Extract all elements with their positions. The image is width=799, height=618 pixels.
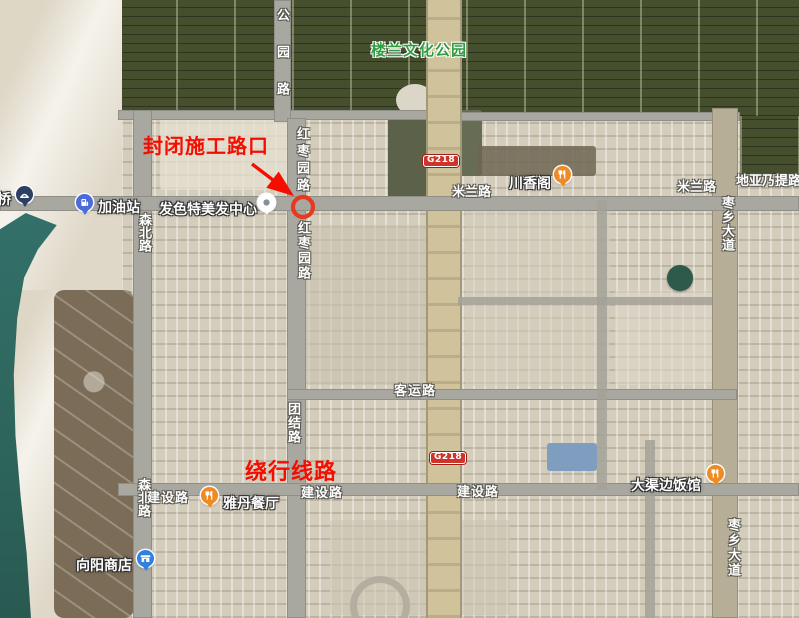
poi-label-xiangyang-store[interactable]: 向阳商店 <box>76 555 132 575</box>
road-minor-vertical-2 <box>645 440 655 618</box>
road-label-jianshe-road-3: 建设路 <box>457 486 499 501</box>
pin-tail <box>81 209 89 215</box>
terrain-building-row <box>478 146 596 176</box>
terrain-trees-1 <box>388 114 426 198</box>
road-minor-vertical-1 <box>597 200 607 490</box>
road-label-hongzaoyuan-road-1: 红枣园路 <box>293 127 308 195</box>
road-label-senbei-road-1: 森北路 <box>135 213 150 252</box>
road-shield-g218-south: G218 <box>430 452 466 464</box>
poi-label-gas-station[interactable]: 加油站 <box>98 197 140 217</box>
poi-pin-daqubian-restaurant[interactable] <box>707 465 724 482</box>
poi-label-bridge[interactable]: 桥 <box>0 189 11 209</box>
pin-tail <box>559 181 567 187</box>
road-keyun <box>287 389 737 400</box>
poi-label-yadan-restaurant[interactable]: 雅丹餐厅 <box>223 493 279 513</box>
road-g218-highway <box>426 0 462 618</box>
bridge-icon <box>19 189 30 200</box>
poi-pin-gas-station[interactable] <box>76 194 93 211</box>
road-label-tuanjie-road: 团结路 <box>284 402 299 444</box>
road-label-jianshe-road-1: 建设路 <box>147 492 189 507</box>
pin-tail <box>206 502 214 508</box>
poi-pin-bridge[interactable] <box>16 186 33 203</box>
pin-tail <box>21 201 29 207</box>
annotation-closed-intersection: 封闭施工路口 <box>143 130 269 159</box>
pin-tail <box>712 480 720 486</box>
road-shield-g218-north: G218 <box>423 155 459 167</box>
road-label-zaoxiang-avenue-2: 枣乡大道 <box>724 518 739 578</box>
poi-label-hair-salon[interactable]: 发色特美发中心 <box>159 199 257 219</box>
terrain-blue-roof-building <box>547 443 597 471</box>
pin-tail <box>142 565 150 571</box>
road-label-milan-road-1: 米兰路 <box>452 186 491 201</box>
road-label-keyun-road: 客运路 <box>394 385 436 400</box>
poi-label-chuanxiangge[interactable]: 川香阁 <box>509 173 551 193</box>
poi-pin-yadan-restaurant[interactable] <box>201 487 218 504</box>
road-label-diyanati-road: 地亚乃提路 <box>736 175 799 190</box>
park-label-loulan-culture-park[interactable]: 楼兰文化公园 <box>371 39 467 60</box>
restaurant-icon <box>557 169 568 180</box>
pin-tail <box>263 209 271 215</box>
shop-icon <box>140 553 151 564</box>
annotation-detour-route: 绕行线路 <box>245 454 337 486</box>
road-senbei <box>133 110 152 618</box>
dot-icon <box>261 197 272 208</box>
fuel-icon <box>79 197 90 208</box>
restaurant-icon <box>710 468 721 479</box>
terrain-farm-fields-right <box>740 116 799 174</box>
road-label-gongyuan-road: 公园路 <box>273 8 288 119</box>
road-label-milan-road-2: 米兰路 <box>677 181 716 196</box>
poi-pin-hair-salon[interactable] <box>258 194 275 211</box>
poi-pin-xiangyang-store[interactable] <box>137 550 154 567</box>
road-label-zaoxiang-avenue-1: 枣乡大道 <box>718 196 733 252</box>
poi-pin-chuanxiangge[interactable] <box>554 166 571 183</box>
road-label-jianshe-road-2: 建设路 <box>301 487 343 502</box>
terrain-dark-block-1 <box>305 225 427 385</box>
road-label-hongzaoyuan-road-2: 红枣园路 <box>294 221 309 281</box>
poi-label-daqubian-restaurant[interactable]: 大渠边饭馆 <box>631 475 701 495</box>
road-field-boundary-east <box>458 112 740 121</box>
road-minor-horizontal-1 <box>458 297 712 305</box>
terrain-green-circle <box>667 265 693 291</box>
restaurant-icon <box>204 490 215 501</box>
satellite-map[interactable]: 楼兰文化公园 封闭施工路口 绕行线路 公园路红枣园路红枣园路米兰路米兰路地亚乃提… <box>0 0 799 618</box>
